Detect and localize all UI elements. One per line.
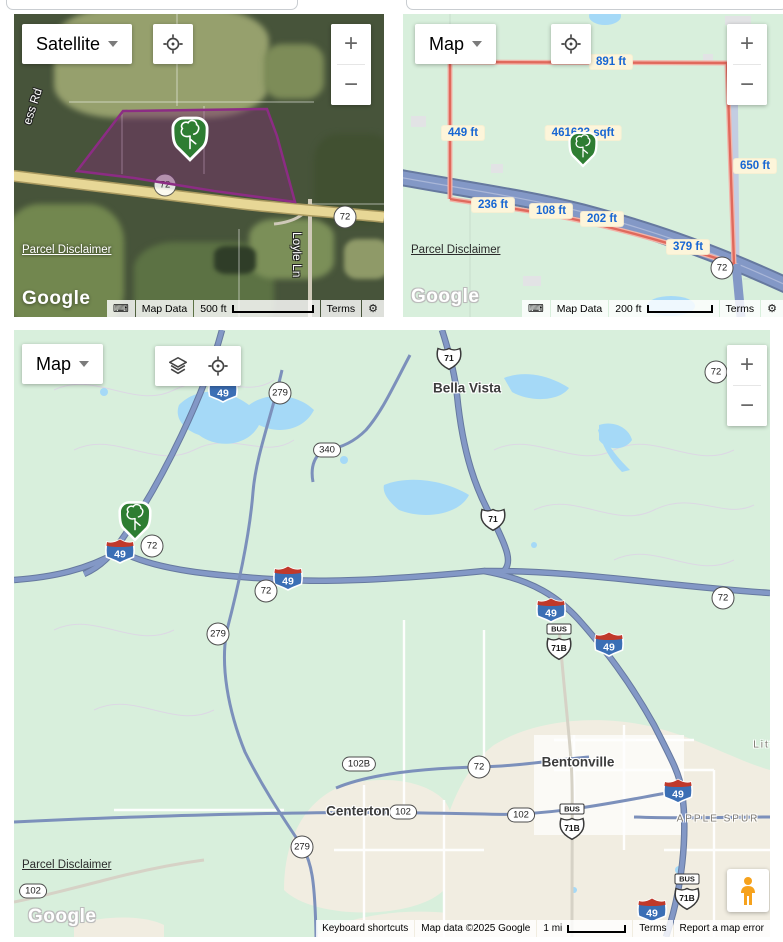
zoom-in-button[interactable]: + [727, 24, 767, 64]
map-type-button[interactable]: Map [415, 24, 496, 64]
top-left-card-cut [6, 0, 298, 10]
google-logo[interactable]: Google [28, 906, 96, 928]
parcel-disclaimer-link[interactable]: Parcel Disclaimer [22, 859, 111, 871]
pill-shield: 102 [507, 808, 535, 823]
measurement-label: 650 ft [734, 159, 776, 173]
zoom-in-button[interactable]: + [331, 24, 371, 64]
keyboard-icon[interactable]: ⌨ [522, 300, 550, 317]
measurement-label: 449 ft [442, 126, 484, 140]
report-map-error-link[interactable]: Report a map error [674, 920, 770, 937]
circle-shield: 279 [269, 382, 292, 405]
locate-button[interactable] [551, 24, 591, 64]
route-shield: 279 279 279 279 [291, 836, 314, 859]
interstate-shield-icon: 49 [663, 778, 693, 805]
zoom-out-button[interactable]: − [727, 386, 767, 426]
city-label: Bentonville [542, 755, 615, 770]
route-shield-72: 72 [711, 257, 734, 280]
pegman-icon [737, 876, 759, 906]
svg-text:49: 49 [282, 576, 294, 588]
route-shield: 49 49 49 49 [594, 631, 624, 658]
route-shield: 102B 102B 102B 102B [342, 757, 376, 772]
property-marker[interactable] [171, 116, 209, 167]
svg-text:49: 49 [646, 908, 658, 920]
parcel-map-canvas[interactable]: 72 891 ft 449 ft 650 ft 236 ft 108 ft 20… [403, 14, 783, 317]
terms-link[interactable]: Terms [321, 300, 362, 317]
crosshair-icon [560, 33, 582, 55]
overview-map-canvas[interactable]: 71 71 71 71 49 49 [14, 330, 770, 937]
map-data-link[interactable]: Map Data [551, 300, 609, 317]
zoom-in-button[interactable]: + [727, 345, 767, 385]
pill-shield: 102 [389, 805, 417, 820]
circle-shield: 72 [468, 756, 491, 779]
map-type-label: Map [36, 354, 71, 375]
route-shield: 49 49 49 49 [663, 778, 693, 805]
scale-control: 200 ft [609, 300, 718, 317]
svg-text:49: 49 [217, 388, 229, 400]
route-shield-72: 72 [334, 206, 357, 229]
route-shield: 71 71 71 71 [436, 346, 463, 371]
overview-map-layer [14, 330, 770, 937]
us-route-shield-icon: 71B [559, 816, 586, 841]
parcel-disclaimer-link[interactable]: Parcel Disclaimer [411, 244, 500, 256]
tree-pin-icon [568, 131, 598, 168]
pill-shield: 340 [313, 443, 341, 458]
route-shield: 279 279 279 279 [207, 623, 230, 646]
scale-control: 500 ft [194, 300, 319, 317]
us-route-shield-icon: 71 [480, 507, 507, 532]
bus-banner: BUS [546, 624, 572, 635]
measurement-label: 236 ft [472, 198, 514, 212]
zoom-controls: + − [727, 345, 767, 426]
city-label: Bella Vista [433, 381, 501, 396]
pegman-control[interactable] [727, 869, 769, 912]
google-logo[interactable]: Google [411, 286, 479, 308]
zoom-controls: + − [727, 24, 767, 105]
scale-bar [567, 925, 626, 933]
svg-text:49: 49 [114, 549, 126, 561]
crosshair-icon[interactable] [207, 355, 229, 377]
google-logo[interactable]: Google [22, 288, 90, 310]
map-type-button[interactable]: Satellite [22, 24, 132, 64]
city-label: Centerton [326, 804, 390, 819]
street-label: Loyle Ln [290, 232, 304, 277]
chevron-down-icon [472, 41, 482, 47]
map-type-label: Satellite [36, 34, 100, 55]
tree-pin-icon [118, 500, 152, 542]
chevron-down-icon [108, 41, 118, 47]
zoom-controls: + − [331, 24, 371, 105]
attribution-bar: ⌨ Map Data 500 ft Terms ⚙ [106, 300, 384, 317]
us-route-shield-icon: 71B [674, 886, 701, 911]
crosshair-icon [162, 33, 184, 55]
route-shield: 72 72 72 72 [468, 756, 491, 779]
attribution-bar: ⌨ Map Data 200 ft Terms ⚙ [521, 300, 783, 317]
page: { "colors": { "map_green": "#d8efdc", "w… [0, 0, 783, 942]
route-shield: 72 72 72 72 [705, 361, 728, 384]
us-route-shield-icon: 71B [546, 636, 573, 661]
scale-label: 1 mi [543, 923, 562, 934]
route-shield: BUS 71B 71B 71B 71B [546, 624, 573, 661]
attribution-bar: Keyboard shortcuts Map data ©2025 Google… [315, 920, 770, 937]
pill-shield: 102B [342, 757, 376, 772]
map-type-label: Map [429, 34, 464, 55]
property-marker[interactable] [568, 131, 598, 173]
place-label: Littl [753, 740, 770, 751]
place-label: APPLE SPUR [677, 814, 760, 825]
map-type-button[interactable]: Map [22, 344, 103, 384]
measurement-label: 891 ft [590, 55, 632, 69]
layers-icon[interactable] [167, 355, 189, 377]
svg-text:71: 71 [488, 514, 498, 524]
scale-label: 500 ft [200, 303, 226, 315]
svg-text:49: 49 [603, 642, 615, 654]
bus-banner: BUS [674, 874, 700, 885]
us-route-shield-icon: 71 [436, 346, 463, 371]
bus-banner: BUS [559, 804, 585, 815]
measurement-label: 202 ft [581, 212, 623, 226]
terms-link[interactable]: Terms [720, 300, 761, 317]
parcel-disclaimer-link[interactable]: Parcel Disclaimer [22, 244, 111, 256]
circle-shield: 279 [291, 836, 314, 859]
route-shield: 49 49 49 49 [273, 565, 303, 592]
keyboard-shortcuts-link[interactable]: Keyboard shortcuts [316, 920, 414, 937]
route-shield: 279 279 279 279 [269, 382, 292, 405]
gear-icon[interactable]: ⚙ [362, 300, 384, 317]
gear-icon[interactable]: ⚙ [761, 300, 783, 317]
route-shield: 49 49 49 49 [536, 597, 566, 624]
interstate-shield-icon: 49 [536, 597, 566, 624]
route-shield: 102 102 102 102 [507, 808, 535, 823]
scale-bar [647, 305, 713, 313]
svg-text:71B: 71B [564, 823, 580, 833]
route-shield: 72 72 72 72 [255, 580, 278, 603]
scale-control: 1 mi [537, 920, 632, 937]
satellite-map-canvas[interactable]: 72 72 ess Rd Loyle Ln Satellite + − Parc… [14, 14, 384, 317]
scale-label: 200 ft [615, 303, 641, 315]
locate-button[interactable] [153, 24, 193, 64]
route-shield: BUS 71B 71B 71B 71B [674, 874, 701, 911]
svg-text:49: 49 [545, 608, 557, 620]
zoom-out-button[interactable]: − [331, 65, 371, 105]
route-shield: 72 72 72 72 [712, 587, 735, 610]
route-shield: BUS 71B 71B 71B 71B [559, 804, 586, 841]
property-marker[interactable] [118, 500, 152, 547]
pill-shield: 102 [19, 884, 47, 899]
map-data-link[interactable]: Map Data [136, 300, 194, 317]
interstate-shield-icon: 49 [594, 631, 624, 658]
route-shield: 102 102 102 102 [19, 884, 47, 899]
circle-shield: 279 [207, 623, 230, 646]
chevron-down-icon [79, 361, 89, 367]
keyboard-icon[interactable]: ⌨ [107, 300, 135, 317]
map-tools-group [155, 346, 241, 386]
measurement-label: 379 ft [667, 240, 709, 254]
route-shield: 340 340 340 340 [313, 443, 341, 458]
map-data-link[interactable]: Map data ©2025 Google [415, 920, 536, 937]
scale-bar [232, 305, 314, 313]
svg-text:71B: 71B [679, 893, 695, 903]
svg-text:71: 71 [444, 353, 454, 363]
circle-shield: 72 [705, 361, 728, 384]
interstate-shield-icon: 49 [273, 565, 303, 592]
circle-shield: 72 [712, 587, 735, 610]
measurement-label: 108 ft [530, 204, 572, 218]
svg-text:49: 49 [672, 789, 684, 801]
zoom-out-button[interactable]: − [727, 65, 767, 105]
circle-shield: 72 [255, 580, 278, 603]
route-shield: 71 71 71 71 [480, 507, 507, 532]
tree-pin-icon [171, 116, 209, 162]
terms-link[interactable]: Terms [633, 920, 672, 937]
route-shield: 102 102 102 102 [389, 805, 417, 820]
top-right-card-cut [406, 0, 783, 10]
svg-text:71B: 71B [551, 643, 567, 653]
